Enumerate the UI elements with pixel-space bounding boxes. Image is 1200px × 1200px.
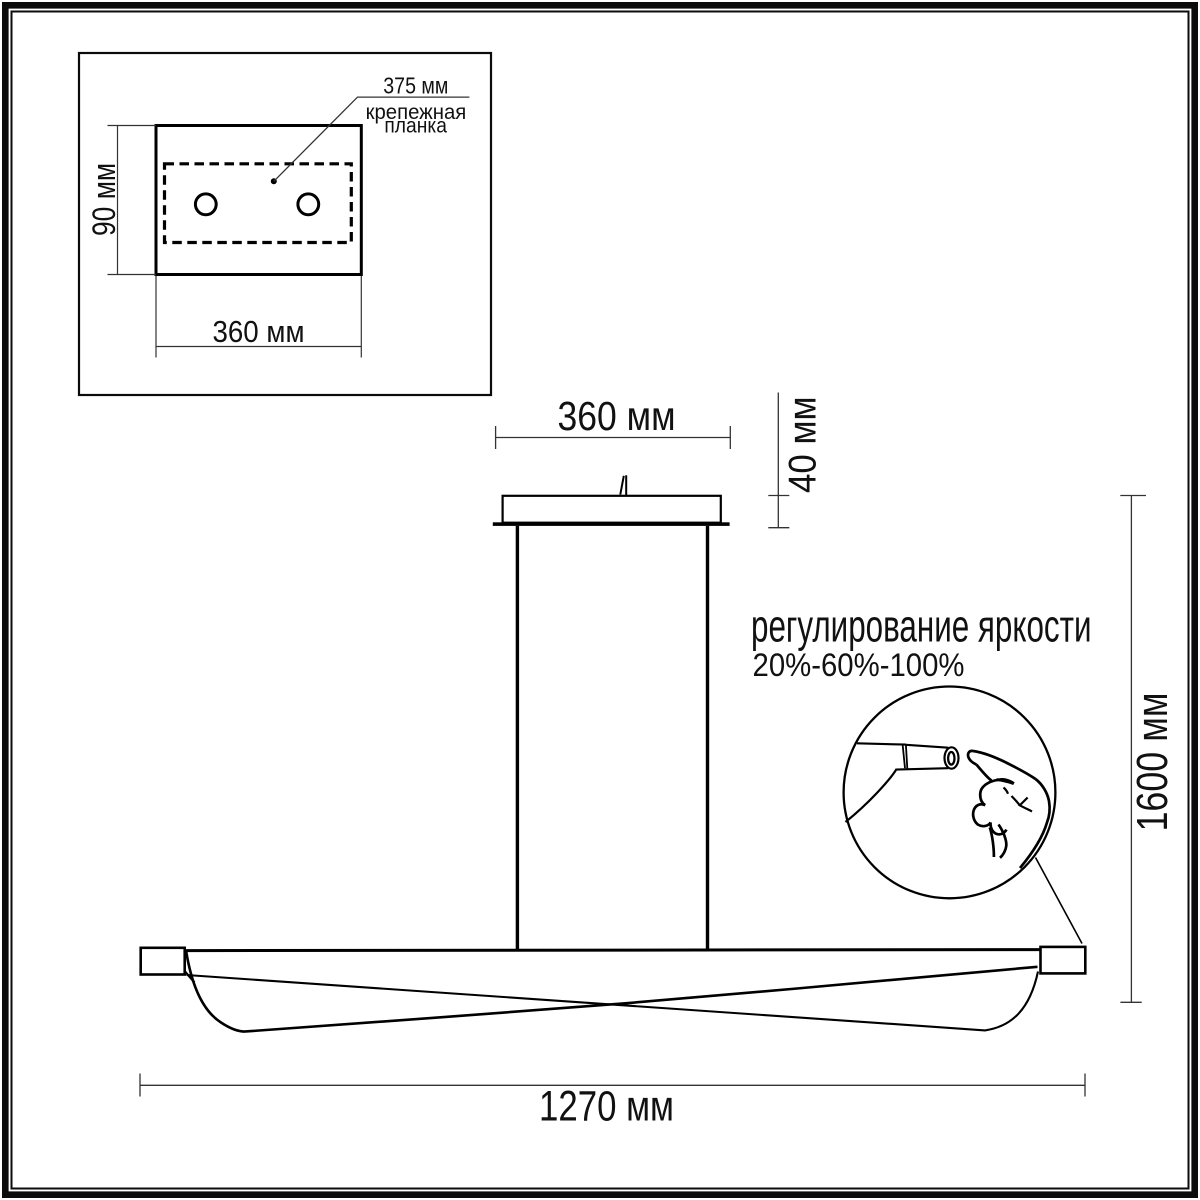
- svg-text:регулирование яркости: регулирование яркости: [751, 600, 1092, 651]
- svg-text:1270 мм: 1270 мм: [539, 1083, 674, 1131]
- svg-text:360 мм: 360 мм: [558, 393, 676, 439]
- svg-text:планка: планка: [384, 114, 447, 138]
- svg-text:1600 мм: 1600 мм: [1128, 693, 1177, 832]
- svg-text:20%-60%-100%: 20%-60%-100%: [753, 646, 965, 683]
- svg-text:360 мм: 360 мм: [213, 316, 305, 349]
- svg-text:375 мм: 375 мм: [383, 73, 448, 99]
- svg-text:40 мм: 40 мм: [782, 397, 825, 494]
- svg-text:90 мм: 90 мм: [86, 163, 122, 236]
